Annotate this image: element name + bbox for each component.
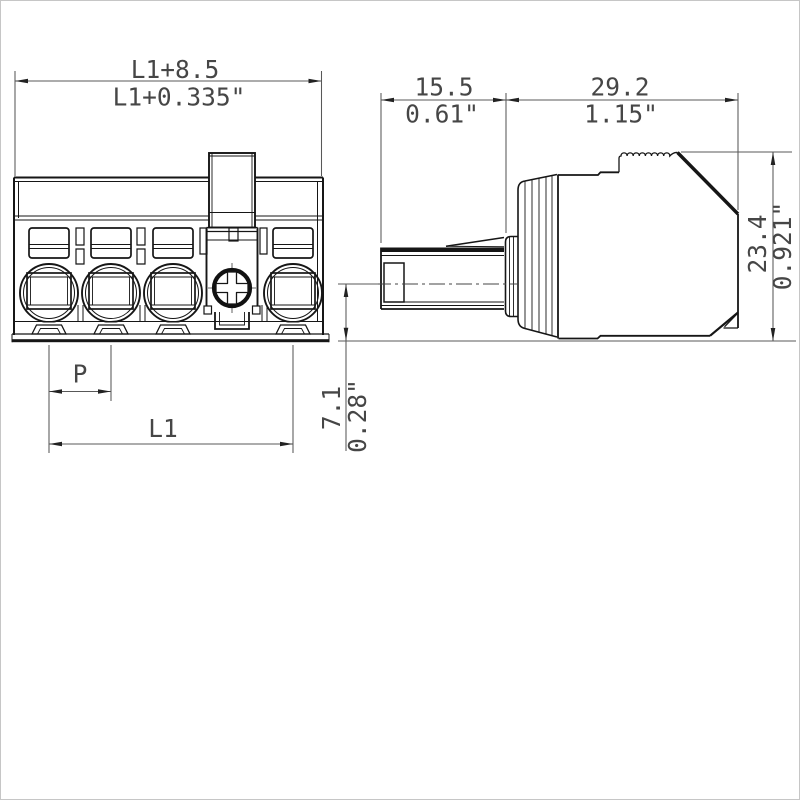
thumb-grip-serration — [619, 152, 678, 172]
dim-body-depth: 29.2 1.15" — [506, 73, 738, 211]
housing-body — [558, 152, 738, 338]
latch — [207, 153, 258, 241]
fixing-screw — [208, 263, 256, 313]
latch-tab — [229, 228, 238, 241]
dim-front-width-mm-label: L1+8.5 — [131, 55, 220, 84]
strain-relief-ribs — [518, 175, 557, 338]
dim-body-depth-mm-label: 29.2 — [590, 73, 649, 102]
dim-plug-depth: 15.5 0.61" — [381, 73, 506, 244]
dimensions: L1+8.5 L1+0.335" 15.5 0.61" 29.2 1.15" 2… — [15, 55, 797, 453]
wire-entry-circle — [20, 264, 78, 322]
dim-length-label: L1 — [148, 414, 178, 443]
dim-plug-depth-mm-label: 15.5 — [414, 73, 473, 102]
wire-entries — [20, 264, 322, 322]
technical-drawing: L1+8.5 L1+0.335" 15.5 0.61" 29.2 1.15" 2… — [1, 1, 799, 799]
dim-pitch-label: P — [73, 360, 88, 389]
side-view — [375, 152, 738, 338]
drawing-canvas: L1+8.5 L1+0.335" 15.5 0.61" 29.2 1.15" 2… — [0, 0, 800, 800]
front-view — [12, 153, 329, 342]
dim-front-width: L1+8.5 L1+0.335" — [15, 55, 322, 176]
strain-relief-collar — [506, 237, 519, 317]
dim-height-inch-label: 0.921" — [768, 202, 797, 291]
release-lever — [446, 238, 504, 247]
wire-entry-circle — [144, 264, 202, 322]
dim-height: 23.4 0.921" — [681, 152, 797, 341]
wire-entry-circle — [82, 264, 140, 322]
plug-top-band — [381, 248, 504, 253]
dim-plug-depth-inch-label: 0.61" — [405, 100, 479, 129]
dim-axis-offset: 7.1 0.28" — [317, 284, 378, 453]
clamp-windows — [29, 228, 313, 258]
dim-axis-offset-inch-label: 0.28" — [343, 379, 372, 453]
dim-front-width-inch-label: L1+0.335" — [113, 83, 246, 112]
dim-axis-offset-mm-label: 7.1 — [317, 386, 346, 430]
pin-recess — [384, 263, 404, 302]
dim-body-depth-inch-label: 1.15" — [584, 100, 658, 129]
base-plate — [12, 339, 329, 342]
wire-entry-circle — [264, 264, 322, 322]
dim-pitch: P — [49, 345, 111, 453]
plug-shroud — [381, 248, 504, 310]
